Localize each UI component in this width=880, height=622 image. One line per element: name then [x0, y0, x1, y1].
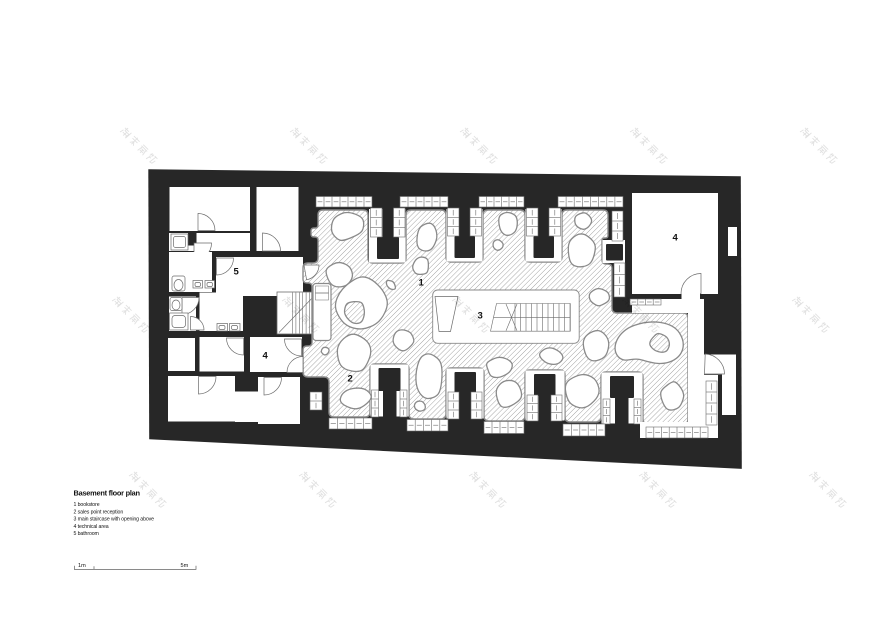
svg-text:4: 4 — [263, 351, 269, 362]
svg-text:2 sales point reception: 2 sales point reception — [74, 509, 124, 515]
svg-text:3 main staircase with opening: 3 main staircase with opening above — [74, 517, 155, 523]
svg-text:2: 2 — [348, 374, 353, 385]
svg-text:1m: 1m — [78, 563, 86, 569]
svg-text:4 technical area: 4 technical area — [74, 524, 109, 530]
svg-text:1: 1 — [419, 278, 425, 289]
svg-text:4: 4 — [673, 233, 679, 244]
svg-text:Basement floor plan: Basement floor plan — [74, 489, 141, 498]
svg-text:5 bathroom: 5 bathroom — [74, 531, 99, 537]
svg-text:5m: 5m — [181, 563, 189, 569]
svg-text:1 bookstore: 1 bookstore — [74, 502, 100, 508]
svg-text:5: 5 — [234, 267, 240, 278]
